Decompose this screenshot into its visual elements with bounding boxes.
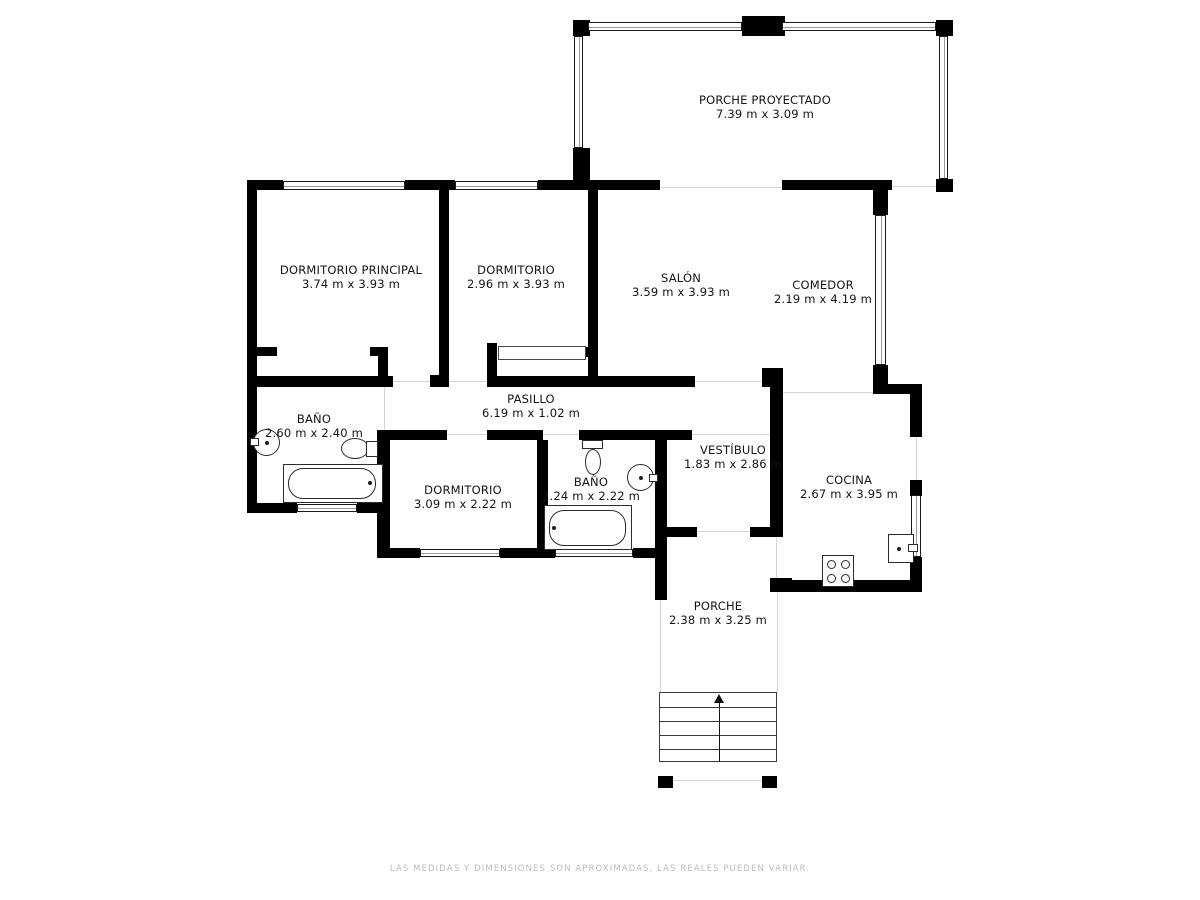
wall: [487, 376, 588, 387]
room-dimensions: 6.19 m x 1.02 m: [482, 406, 580, 420]
wall: [377, 548, 420, 558]
room-boundary-line: [393, 381, 430, 382]
wall: [378, 355, 388, 376]
room-dimensions: 2.24 m x 2.22 m: [542, 489, 640, 503]
stair-step-line: [660, 707, 776, 708]
room-boundary-line: [692, 434, 770, 435]
wall: [667, 527, 697, 537]
window: [555, 549, 633, 557]
window: [782, 22, 936, 31]
wall: [357, 503, 390, 513]
window-pane-line: [944, 37, 945, 178]
wall: [579, 430, 692, 440]
stairs-direction-line: [719, 702, 720, 762]
window-pane-line: [456, 186, 537, 187]
wall: [742, 16, 785, 36]
room-boundary-line: [695, 381, 762, 382]
room-name: DORMITORIO: [414, 483, 512, 497]
wall: [873, 180, 888, 215]
room-name: DORMITORIO PRINCIPAL: [280, 263, 422, 277]
wall: [598, 376, 695, 387]
room-dimensions: 3.59 m x 3.93 m: [632, 285, 730, 299]
sink-drain-icon: [897, 547, 901, 551]
bathtub-tap-icon: [368, 481, 372, 485]
toilet-bowl-icon: [341, 438, 369, 459]
room-name: SALÓN: [632, 271, 730, 285]
wall: [487, 430, 543, 440]
wall: [257, 347, 277, 356]
wall: [538, 180, 660, 190]
wall: [655, 527, 667, 600]
wall: [936, 20, 953, 36]
room-dimensions: 2.96 m x 3.93 m: [467, 277, 565, 291]
wall: [588, 190, 598, 387]
room-boundary-line: [449, 381, 487, 382]
room-name: VESTÍBULO: [684, 443, 782, 457]
window: [283, 181, 405, 190]
room-boundary-line: [660, 187, 782, 188]
room-boundary-line: [384, 387, 385, 430]
wall: [633, 548, 667, 558]
stair-step-line: [660, 735, 776, 736]
window-pane-line: [589, 27, 741, 28]
room-dimensions: 7.39 m x 3.09 m: [699, 107, 831, 121]
room-name: DORMITORIO: [467, 263, 565, 277]
window: [939, 36, 948, 179]
floorplan-canvas: LAS MEDIDAS Y DIMENSIONES SON APROXIMADA…: [0, 0, 1200, 900]
room-boundary-line: [892, 186, 937, 187]
room-label-porche: PORCHE2.38 m x 3.25 m: [669, 599, 767, 627]
window: [588, 22, 742, 31]
room-label-salon: SALÓN3.59 m x 3.93 m: [632, 271, 730, 299]
window: [455, 181, 538, 190]
room-dimensions: 2.19 m x 4.19 m: [774, 292, 872, 306]
stairs-up-arrow-icon: [714, 694, 724, 703]
sink-drain-icon: [265, 441, 269, 445]
stove-icon: [822, 555, 854, 587]
room-boundary-line: [776, 533, 777, 578]
tap-icon: [649, 474, 658, 482]
burner-icon: [841, 560, 850, 569]
room-dimensions: 2.38 m x 3.25 m: [669, 613, 767, 627]
stairs: [659, 692, 777, 762]
room-dimensions: 1.83 m x 2.86 m: [684, 457, 782, 471]
room-label-dormitorio-principal: DORMITORIO PRINCIPAL3.74 m x 3.93 m: [280, 263, 422, 291]
room-name: BAÑO: [265, 412, 363, 426]
bathtub-tap-icon: [552, 526, 556, 530]
wall: [873, 365, 888, 394]
room-boundary-line: [447, 434, 487, 435]
wall: [573, 148, 590, 180]
footer-disclaimer: LAS MEDIDAS Y DIMENSIONES SON APROXIMADA…: [390, 864, 810, 874]
room-name: COCINA: [800, 473, 898, 487]
room-dimensions: 2.60 m x 2.40 m: [265, 426, 363, 440]
room-label-comedor: COMEDOR2.19 m x 4.19 m: [774, 278, 872, 306]
wall: [439, 190, 449, 378]
tap-icon: [250, 438, 259, 446]
room-label-pasillo: PASILLO6.19 m x 1.02 m: [482, 392, 580, 420]
room-label-dormitorio-3: DORMITORIO3.09 m x 2.22 m: [414, 483, 512, 511]
wall: [390, 430, 447, 440]
bathtub-basin-icon: [288, 468, 376, 499]
window-pane-line: [556, 553, 632, 554]
tap-icon: [908, 544, 918, 552]
window-pane-line: [284, 186, 404, 187]
room-boundary-line: [916, 437, 917, 480]
wall: [910, 480, 922, 496]
room-label-bano-2: BAÑO2.24 m x 2.22 m: [542, 475, 640, 503]
toilet-bowl-icon: [585, 449, 601, 475]
window-pane-line: [783, 27, 935, 28]
stair-step-line: [660, 721, 776, 722]
room-name: PORCHE: [669, 599, 767, 613]
room-boundary-line: [660, 600, 661, 692]
window-pane-line: [421, 553, 499, 554]
room-boundary-line: [777, 592, 778, 692]
room-name: COMEDOR: [774, 278, 872, 292]
wall: [247, 376, 393, 387]
room-dimensions: 3.74 m x 3.93 m: [280, 277, 422, 291]
wall: [430, 375, 449, 387]
wall: [247, 503, 297, 513]
room-boundary-line: [783, 392, 873, 393]
window-pane-line: [881, 216, 882, 364]
stair-step-line: [660, 749, 776, 750]
wall: [762, 776, 777, 788]
room-name: PORCHE PROYECTADO: [699, 93, 831, 107]
window: [574, 36, 583, 148]
window-pane-line: [298, 508, 356, 509]
wall: [936, 179, 953, 192]
wardrobe: [498, 346, 586, 360]
burner-icon: [827, 574, 836, 583]
room-label-porche-proyectado: PORCHE PROYECTADO7.39 m x 3.09 m: [699, 93, 831, 121]
room-label-vestibulo: VESTÍBULO1.83 m x 2.86 m: [684, 443, 782, 471]
room-boundary-line: [672, 780, 762, 781]
room-label-dormitorio: DORMITORIO2.96 m x 3.93 m: [467, 263, 565, 291]
room-name: BAÑO: [542, 475, 640, 489]
window: [297, 504, 357, 512]
wall: [247, 180, 257, 513]
room-boundary-line: [543, 434, 579, 435]
room-label-bano-1: BAÑO2.60 m x 2.40 m: [265, 412, 363, 440]
wall: [658, 776, 673, 788]
wall: [405, 180, 455, 190]
toilet-tank-icon: [366, 441, 378, 457]
burner-icon: [827, 560, 836, 569]
burner-icon: [841, 574, 850, 583]
window-pane-line: [579, 37, 580, 147]
window: [420, 549, 500, 557]
room-dimensions: 2.67 m x 3.95 m: [800, 487, 898, 501]
room-name: PASILLO: [482, 392, 580, 406]
room-dimensions: 3.09 m x 2.22 m: [414, 497, 512, 511]
room-label-cocina: COCINA2.67 m x 3.95 m: [800, 473, 898, 501]
window: [875, 215, 886, 365]
bathtub-basin-icon: [549, 510, 626, 546]
room-boundary-line: [697, 531, 750, 532]
toilet-tank-icon: [582, 440, 603, 449]
